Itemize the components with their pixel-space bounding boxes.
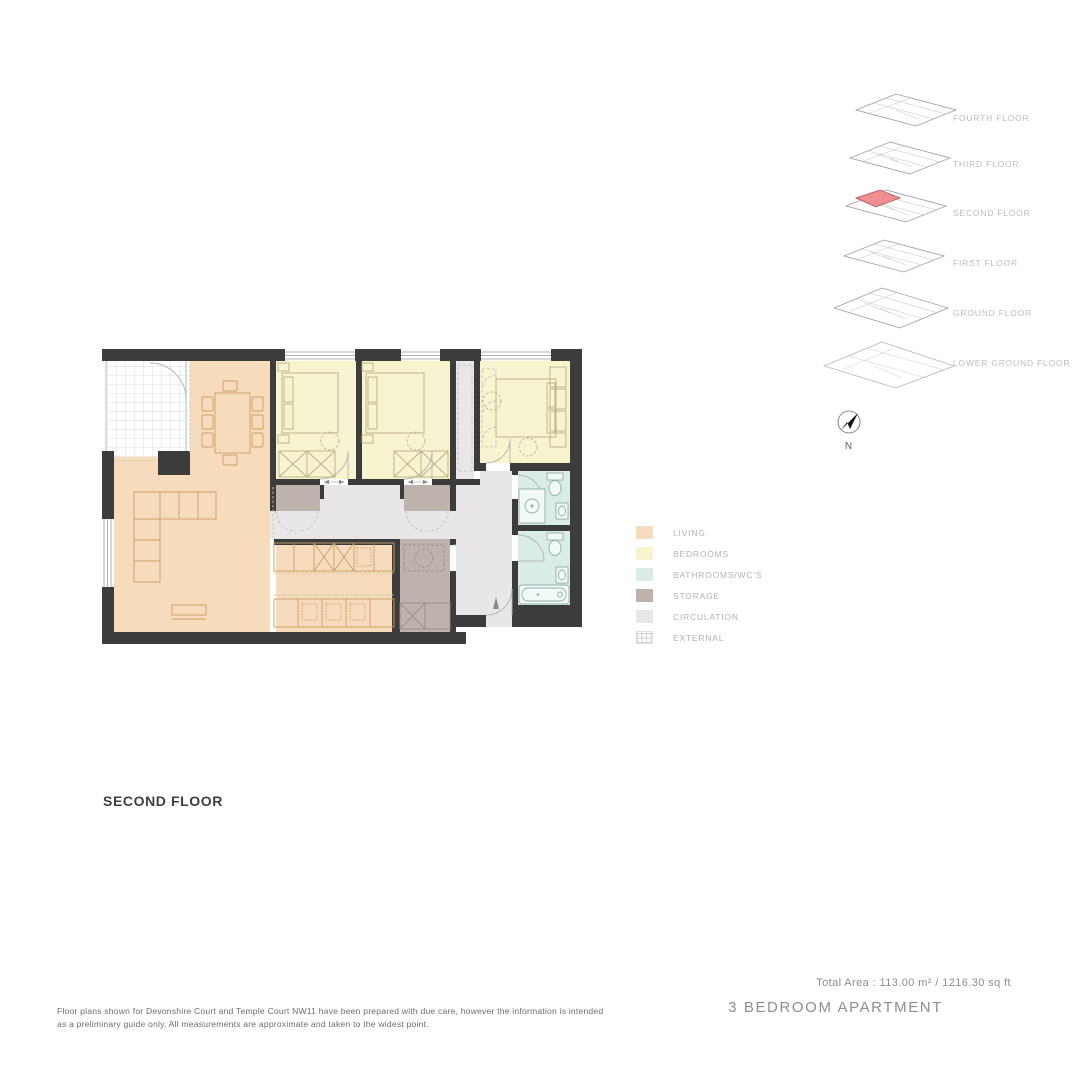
legend-label-living: LIVING <box>673 528 706 538</box>
room-strip <box>456 361 474 479</box>
floor-stack-diagram <box>820 72 960 392</box>
apartment-type-title: 3 BEDROOM APARTMENT <box>728 999 943 1016</box>
floor-title: SECOND FLOOR <box>103 793 223 809</box>
floor-thumb-fourth <box>856 94 956 126</box>
legend-swatch-storage <box>636 589 653 602</box>
shower <box>519 489 545 523</box>
room-entry-gap <box>486 615 512 627</box>
basin-1 <box>556 503 568 519</box>
balcony-grid <box>106 353 186 461</box>
stack-label-lower-ground-floor: LOWER GROUND FLOOR <box>953 358 1070 368</box>
north-arrow-icon <box>841 413 858 430</box>
total-area-text: Total Area : 113.00 m² / 1216.30 sq ft <box>816 977 1011 989</box>
north-compass: N <box>834 409 864 455</box>
legend-row-living: LIVING <box>636 526 762 539</box>
floor-plan <box>98 339 592 657</box>
legend-label-bedrooms: BEDROOMS <box>673 549 729 559</box>
legend-swatch-living <box>636 526 653 539</box>
floor-thumb-second <box>846 190 946 222</box>
legend-row-circulation: CIRCULATION <box>636 610 762 623</box>
room-living-2 <box>114 457 190 632</box>
basin-2 <box>556 567 568 583</box>
floor-thumb-first <box>844 240 944 272</box>
legend-label-storage: STORAGE <box>673 591 720 601</box>
floor-thumb-lower-ground <box>824 342 954 388</box>
legend-row-external: EXTERNAL <box>636 631 762 644</box>
legend-label-external: EXTERNAL <box>673 633 724 643</box>
stack-label-fourth-floor: FOURTH FLOOR <box>953 113 1030 123</box>
floor-thumb-third <box>850 142 950 174</box>
room-storage-pocket-1 <box>274 485 320 511</box>
legend-swatch-bedrooms <box>636 547 653 560</box>
bathtub <box>519 585 569 604</box>
legend-row-storage: STORAGE <box>636 589 762 602</box>
room-storage-pocket-2 <box>404 485 450 511</box>
stack-label-third-floor: THIRD FLOOR <box>953 159 1019 169</box>
legend: LIVING BEDROOMS BATHROOMS/WC'S STORAGE C… <box>636 526 762 652</box>
room-bedroom-3 <box>480 361 570 463</box>
legend-label-bathrooms: BATHROOMS/WC'S <box>673 570 762 580</box>
compass-icon <box>834 409 864 439</box>
stack-label-second-floor: SECOND FLOOR <box>953 208 1031 218</box>
floor-thumb-ground <box>834 288 948 328</box>
compass-n-label: N <box>834 441 864 452</box>
stack-label-ground-floor: GROUND FLOOR <box>953 308 1032 318</box>
stack-label-first-floor: FIRST FLOOR <box>953 258 1018 268</box>
legend-row-bedrooms: BEDROOMS <box>636 547 762 560</box>
legend-swatch-bathrooms <box>636 568 653 581</box>
brochure-page: FOURTH FLOOR THIRD FLOOR SECOND FLOOR FI… <box>0 0 1080 1080</box>
legend-row-bathrooms: BATHROOMS/WC'S <box>636 568 762 581</box>
room-bedroom-1 <box>276 361 356 479</box>
legend-label-circulation: CIRCULATION <box>673 612 739 622</box>
legend-swatch-external <box>636 631 653 644</box>
disclaimer-text: Floor plans shown for Devonshire Court a… <box>57 1005 609 1031</box>
legend-swatch-circulation <box>636 610 653 623</box>
